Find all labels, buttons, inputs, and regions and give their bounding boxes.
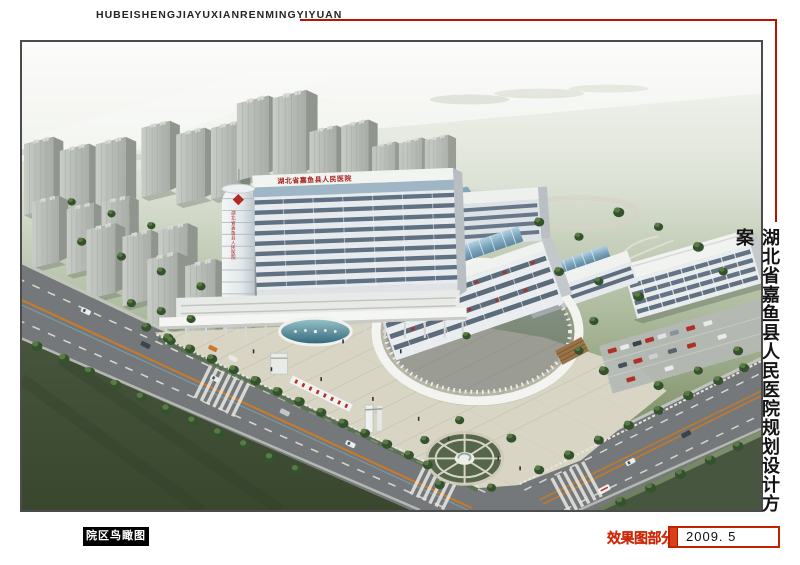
date-box: 2009. 5	[668, 526, 780, 548]
rendering-frame: 湖北省嘉鱼县人民医院 湖北省嘉鱼县人民医院	[20, 40, 763, 512]
date-text: 2009. 5	[686, 529, 736, 544]
presentation-board: { "header": { "pinyin_title": "HUBEISHEN…	[0, 0, 800, 565]
date-red-bar	[670, 528, 678, 546]
main-inpatient-tower: 湖北省嘉鱼县人民医院	[252, 168, 467, 305]
kiosk	[271, 353, 288, 374]
section-stamp-label: 效果图部分	[607, 528, 675, 548]
view-label-badge: 院区鸟瞰图	[83, 527, 149, 546]
red-rule-horizontal	[300, 19, 777, 21]
project-title-vertical: 湖北省嘉鱼县人民医院规划设计方案	[757, 228, 783, 520]
hospital-aerial-rendering: 湖北省嘉鱼县人民医院 湖北省嘉鱼县人民医院	[22, 42, 761, 510]
circular-garden	[427, 433, 503, 485]
cylinder-tower: 湖北省嘉鱼县人民医院	[222, 169, 255, 312]
tower-sign-text: 湖北省嘉鱼县人民医院	[231, 210, 237, 262]
red-rule-vertical	[775, 19, 777, 222]
